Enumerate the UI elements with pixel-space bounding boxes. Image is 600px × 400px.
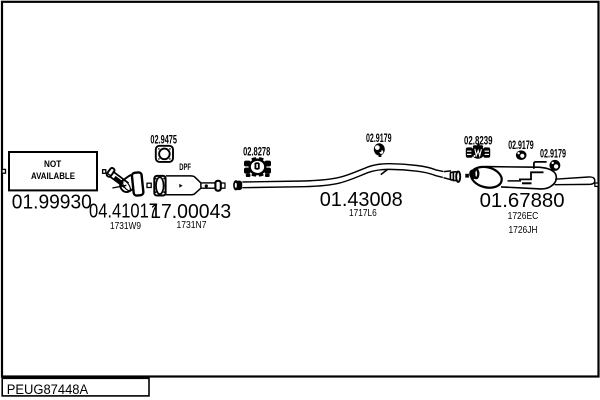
svg-text:02.8278: 02.8278: [243, 147, 271, 159]
svg-text:02.9179: 02.9179: [508, 140, 534, 152]
svg-text:DPF: DPF: [179, 162, 191, 173]
svg-text:1731W9: 1731W9: [110, 221, 141, 232]
svg-text:01.67880: 01.67880: [480, 190, 565, 212]
svg-text:04.41017: 04.41017: [89, 200, 158, 222]
svg-text:01.99930: 01.99930: [12, 192, 92, 214]
svg-text:1731N7: 1731N7: [177, 220, 207, 231]
svg-text:1726JH: 1726JH: [509, 225, 538, 236]
svg-text:02.9475: 02.9475: [150, 133, 177, 147]
svg-text:PEUG87448A: PEUG87448A: [7, 382, 89, 397]
svg-text:AVAILABLE: AVAILABLE: [31, 171, 75, 181]
svg-text:02.8239: 02.8239: [464, 136, 493, 148]
svg-text:NOT: NOT: [44, 159, 62, 169]
svg-text:02.9179: 02.9179: [366, 133, 392, 145]
svg-text:02.9179: 02.9179: [540, 149, 566, 161]
svg-text:1726EC: 1726EC: [508, 211, 539, 222]
svg-text:1717L6: 1717L6: [349, 208, 377, 219]
